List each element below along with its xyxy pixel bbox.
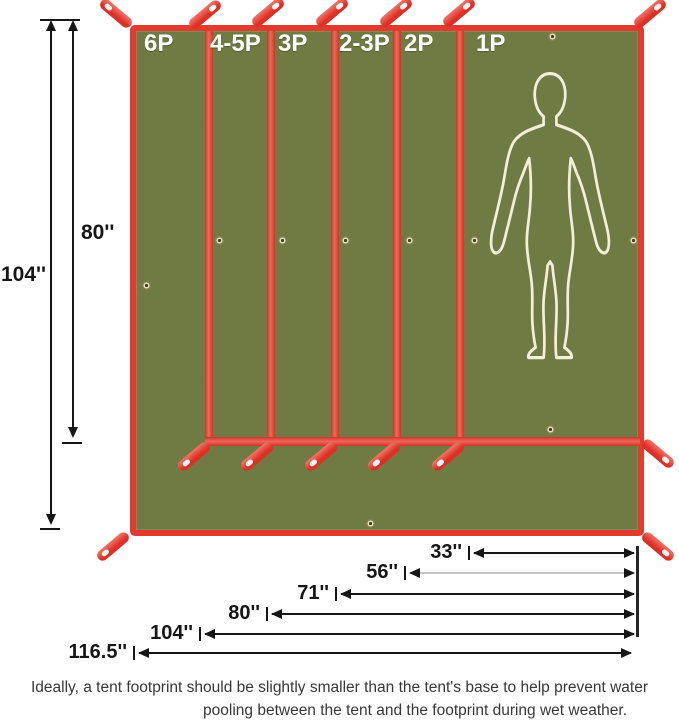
dim-tick	[62, 442, 82, 444]
divider-stripe	[331, 31, 339, 446]
panel-label-2p: 2P	[404, 30, 433, 58]
width-label-33: 33''	[392, 541, 462, 564]
divider-stripe	[267, 31, 275, 446]
caption-line-1: Ideally, a tent footprint should be slig…	[31, 676, 648, 699]
dim-tick	[335, 587, 337, 601]
grommet-icon	[629, 236, 638, 245]
grommet-icon	[341, 236, 350, 245]
width-arrow-56	[410, 572, 634, 574]
width-arrow-104	[205, 633, 634, 635]
grommet-icon	[405, 236, 414, 245]
dim-tick	[404, 566, 406, 580]
tie-strap	[98, 0, 134, 30]
tie-strap	[640, 530, 676, 563]
grommet-icon	[215, 236, 224, 245]
dim-baseline	[636, 546, 639, 637]
dim-tick	[133, 646, 135, 660]
height-arrow-104	[50, 22, 52, 523]
grommet-icon	[470, 236, 479, 245]
width-label-71: 71''	[259, 582, 329, 605]
footprint-size-diagram: 6P 4-5P 3P 2-3P 2P 1P 104'' 80''	[0, 0, 679, 721]
height-label-104: 104''	[0, 263, 46, 287]
width-arrow-80	[272, 613, 634, 615]
panel-label-1p: 1P	[476, 30, 505, 58]
caption-line-2: pooling between the tent and the footpri…	[203, 699, 627, 721]
dim-tick	[199, 627, 201, 641]
dim-tick	[40, 528, 60, 530]
dim-tick	[468, 546, 470, 560]
grommet-icon	[278, 236, 287, 245]
panel-label-45p: 4-5P	[210, 30, 261, 58]
panel-label-23p: 2-3P	[339, 30, 390, 58]
human-silhouette-icon	[486, 68, 614, 366]
width-arrow-71	[341, 593, 634, 595]
height-arrow-80	[72, 22, 74, 436]
tie-strap	[632, 0, 668, 30]
divider-stripe	[205, 31, 213, 446]
grommet-icon	[142, 281, 151, 290]
width-label-116: 116.5''	[37, 641, 127, 664]
dim-tick	[266, 607, 268, 621]
tie-strap	[640, 437, 676, 470]
width-arrow-116	[139, 652, 631, 654]
divider-stripe	[393, 31, 401, 446]
divider-stripe	[456, 31, 464, 446]
height-label-80: 80''	[81, 221, 114, 245]
grommet-icon	[546, 425, 555, 434]
panel-label-3p: 3P	[278, 30, 307, 58]
tie-strap	[95, 530, 131, 563]
width-label-56: 56''	[328, 561, 398, 584]
grommet-icon	[366, 519, 375, 528]
width-label-80: 80''	[190, 602, 260, 625]
grommet-icon	[548, 32, 557, 41]
width-arrow-33	[474, 552, 634, 554]
panel-label-6p: 6P	[144, 30, 173, 58]
